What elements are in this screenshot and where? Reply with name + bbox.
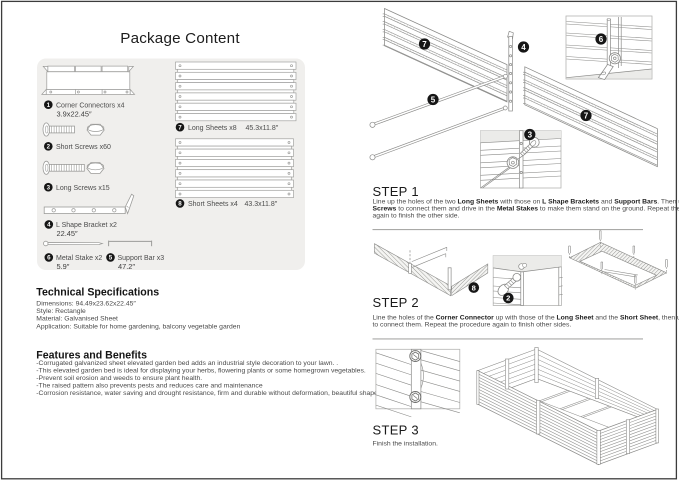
svg-text:3: 3 [528, 130, 533, 139]
svg-text:Finish the installation.: Finish the installation. [373, 441, 438, 448]
svg-text:Line the holes of the Corner C: Line the holes of the Corner Connector u… [373, 314, 679, 321]
svg-text:STEP 3: STEP 3 [373, 423, 419, 438]
svg-text:Package Content: Package Content [120, 30, 240, 47]
svg-text:2: 2 [506, 294, 510, 303]
svg-text:-Corrugated galvanized sheet e: -Corrugated galvanized sheet elevated ga… [36, 360, 338, 367]
svg-text:STEP 2: STEP 2 [373, 295, 419, 310]
svg-text:8: 8 [472, 283, 476, 292]
svg-text:6: 6 [599, 35, 604, 44]
svg-text:7: 7 [584, 111, 589, 120]
svg-text:Material: Galvanised Sheet: Material: Galvanised Sheet [36, 316, 118, 323]
svg-text:8: 8 [178, 201, 182, 208]
svg-text:7: 7 [422, 40, 427, 49]
svg-text:7: 7 [178, 124, 182, 131]
svg-text:Dimensions: 94.49x23.62x22.45″: Dimensions: 94.49x23.62x22.45″ [36, 300, 136, 307]
svg-text:-Prevent soil erosion and weed: -Prevent soil erosion and weeds to ensur… [36, 375, 202, 382]
svg-text:6: 6 [47, 255, 51, 262]
svg-text:3: 3 [47, 184, 51, 191]
svg-text:5.9″: 5.9″ [57, 262, 70, 271]
svg-text:2: 2 [47, 144, 51, 151]
svg-text:Short Screws x60: Short Screws x60 [56, 144, 111, 151]
svg-text:L Shape Bracket x2: L Shape Bracket x2 [56, 222, 117, 229]
svg-text:47.2″: 47.2″ [118, 262, 135, 271]
svg-text:Style: Rectangle: Style: Rectangle [36, 308, 86, 315]
svg-text:Long Sheets x8: Long Sheets x8 [188, 125, 237, 132]
svg-text:5: 5 [431, 95, 436, 104]
svg-text:3.9x22.45″: 3.9x22.45″ [57, 110, 92, 119]
svg-text:Line up the holes of the two L: Line up the holes of the two Long Sheets… [373, 198, 679, 205]
svg-text:45.3x11.8″: 45.3x11.8″ [246, 125, 279, 132]
svg-text:-This elevated garden bed is i: -This elevated garden bed is ideal for d… [36, 368, 366, 375]
svg-text:Application: Suitable for home: Application: Suitable for home gardening… [36, 323, 240, 330]
svg-text:4: 4 [47, 222, 51, 229]
svg-text:Long Screws x15: Long Screws x15 [56, 185, 110, 192]
svg-text:Metal Stake x2: Metal Stake x2 [56, 255, 102, 262]
svg-text:5: 5 [109, 255, 113, 262]
svg-text:Technical Specifications: Technical Specifications [36, 286, 159, 298]
svg-text:Corner Connectors x4: Corner Connectors x4 [56, 102, 125, 109]
svg-text:1: 1 [47, 102, 51, 109]
svg-text:Short Sheets x4: Short Sheets x4 [188, 201, 238, 208]
svg-text:-The raised pattern also preve: -The raised pattern also prevents pests … [36, 383, 263, 390]
svg-text:4: 4 [521, 43, 526, 52]
svg-text:22.45″: 22.45″ [57, 229, 78, 238]
svg-text:Screws to connect them and dri: Screws to connect them and drive in the … [373, 206, 679, 213]
svg-text:43.3x11.8″: 43.3x11.8″ [245, 201, 278, 208]
svg-text:STEP 1: STEP 1 [373, 184, 419, 199]
svg-text:Support Bar x3: Support Bar x3 [118, 255, 165, 262]
svg-text:again to finish the other side: again to finish the other side. [373, 213, 460, 220]
svg-text:-Corrosion resistance, water s: -Corrosion resistance, water saving and … [36, 390, 378, 397]
svg-text:to connect them. Repeat the pr: to connect them. Repeat the procedure ag… [373, 321, 572, 328]
